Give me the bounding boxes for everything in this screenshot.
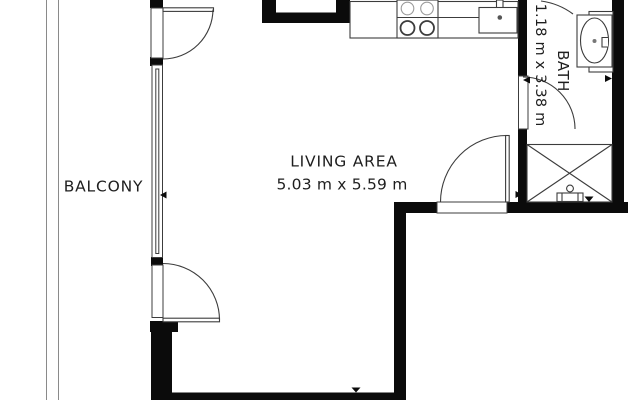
wall-left-bottom — [151, 321, 172, 400]
door-leaf-icon — [506, 136, 510, 203]
window-glazing-icon — [152, 65, 163, 258]
shower-drain-icon — [557, 193, 583, 202]
door-swing-icon — [163, 10, 213, 60]
kitchen — [350, 0, 518, 38]
door-leaf-icon — [163, 318, 220, 322]
wall-bath-left-upper — [518, 0, 527, 76]
floorplan: BALCONY LIVING AREA 5.03 m x 5.59 m BATH… — [0, 0, 640, 400]
balcony-label: BALCONY — [64, 178, 144, 196]
bath-sink-tap — [602, 38, 608, 48]
balcony-door-top-opening — [151, 8, 163, 58]
wall-left-top — [150, 0, 163, 8]
wall-living-right — [394, 203, 406, 400]
kitchen-sink-icon — [479, 8, 517, 34]
balcony-door-bottom-opening — [152, 265, 163, 318]
door-leaf-icon — [163, 8, 214, 12]
arrow-marker-icon — [605, 75, 612, 82]
floorplan-drawing: BALCONY LIVING AREA 5.03 m x 5.59 m BATH… — [0, 0, 640, 400]
kitchen-sink-drain — [498, 15, 503, 20]
shower-valve-icon — [567, 185, 574, 192]
living-door-opening — [437, 202, 507, 213]
bath-door-opening — [519, 76, 529, 129]
wall-bath-left-lower — [518, 129, 527, 203]
door-swing-icon — [163, 264, 220, 321]
bath-dimensions: 1.18 m x 3.38 m — [532, 4, 548, 127]
wall-bath-right — [612, 0, 624, 213]
bath-sink-drain — [593, 39, 597, 43]
window-glass — [156, 69, 159, 254]
stove-burner-icon — [401, 2, 414, 15]
balcony-railing-icon — [47, 0, 59, 400]
stove-burner-icon — [420, 21, 434, 35]
wall-bottom — [171, 393, 406, 400]
wall-bath-bottom-right — [507, 202, 628, 213]
stove-burner-icon — [401, 21, 415, 35]
living-area-dimensions: 5.03 m x 5.59 m — [276, 176, 407, 194]
living-area-label: LIVING AREA — [290, 153, 397, 171]
bath-label: BATH — [554, 50, 572, 92]
stove-burner-icon — [421, 2, 434, 15]
arrow-marker-icon — [352, 388, 361, 393]
door-swing-icon — [441, 136, 508, 203]
wall-bath-bottom-left — [394, 202, 438, 213]
entry-niche-opening — [276, 0, 336, 13]
